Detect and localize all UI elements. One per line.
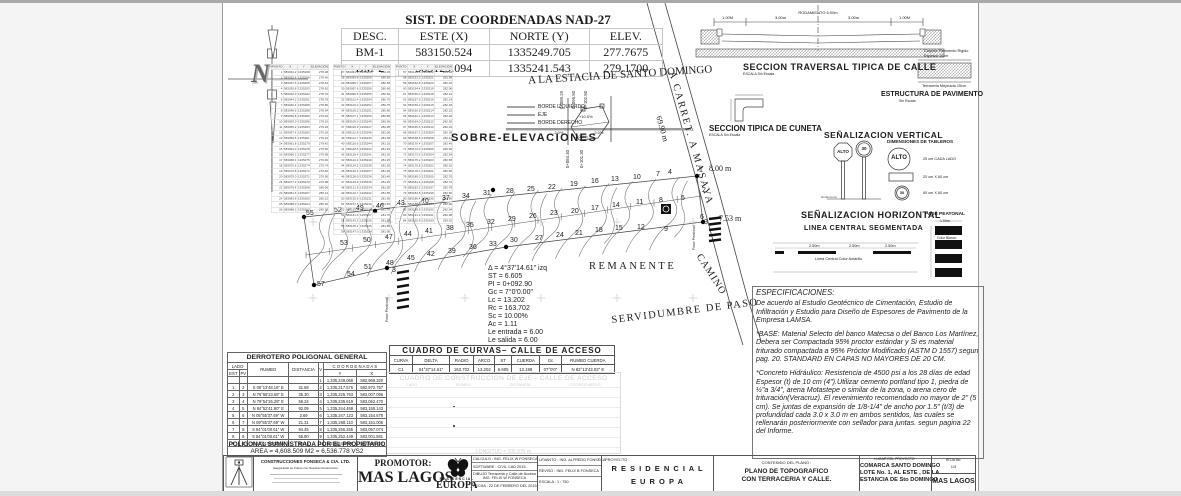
pav-layer1b: Espesor 10cm (924, 54, 948, 58)
proyecto-cell: PROYECTO : R E S I D E N C I A L E U R O… (601, 455, 713, 491)
lugar-label: LUGAR DEL PROYECTO : (860, 457, 931, 461)
svg-text:25: 25 (527, 186, 535, 193)
svg-text:19: 19 (570, 181, 578, 188)
pct-minus2b: -2.0% (593, 130, 603, 135)
svg-text:39: 39 (448, 248, 456, 255)
pav-layer2: Terraceria Mejorada 15cm (922, 84, 966, 88)
fecha-row: FECHA : 22 DE FEBRERO DEL 2015 (472, 482, 537, 490)
svg-text:17: 17 (591, 205, 599, 212)
specs-paragraph-2: *BASE: Material Selecto del banco Matecs… (756, 330, 980, 363)
svg-text:21: 21 (575, 230, 583, 237)
contenido-cell: CONTENIDO DEL PLANO : PLANO DE TOPOGRAFI… (713, 455, 859, 491)
speed-sign-big: 30 (896, 190, 908, 195)
company-cell: CONSTRUCCIONES FONSECA & CIA. LTD. Asegu… (253, 455, 357, 491)
pav-layer1a: Carpeta Pavimento Rigido (924, 49, 968, 53)
svg-text:8: 8 (659, 197, 663, 204)
station-top-3: 0+102.50 (583, 91, 588, 109)
lugar-cell: LUGAR DEL PROYECTO : COMARCA SANTO DOMIN… (859, 455, 931, 491)
plan-sheet: 5552494643403734312825221916131074153504… (222, 3, 979, 491)
svg-text:24: 24 (556, 232, 564, 239)
linea-central-subtitle: LINEA CENTRAL SEGMENTADA (804, 225, 923, 232)
center-line-note: Linea Central Color Amarillo (815, 257, 862, 261)
specs-paragraph-1: De acuerdo al Estudio Geotécnico de Cime… (756, 299, 980, 324)
legend-borde-der: BORDE DERECHO (538, 120, 582, 126)
pase-peatonal-left-label: Pase Peatonal (385, 297, 389, 322)
svg-text:13: 13 (611, 176, 619, 183)
station-bot-2: 0+101.30 (579, 150, 584, 168)
svg-text:53: 53 (340, 240, 348, 247)
svg-text:5: 5 (681, 195, 685, 202)
europa-small: EUROPA (436, 480, 476, 491)
pct-plus10: +10.0% (579, 114, 593, 119)
reviso-row: REVISO : ING. FELIX B FONSECA (538, 466, 601, 477)
svg-text:11: 11 (636, 199, 643, 206)
width1-label: 8.00 m (709, 164, 731, 173)
svg-text:3: 3 (704, 219, 708, 226)
curve-data-note: Δ = 4°37'14.61" izqST = 6.605PI = 0+092.… (488, 265, 618, 345)
svg-text:22: 22 (548, 184, 556, 191)
specs-paragraph-3: *Concreto Hidráulico: Resistencia de 450… (756, 369, 980, 435)
company-name: CONSTRUCCIONES FONSECA & CIA. LTD. (254, 459, 357, 464)
svg-text:41: 41 (425, 228, 433, 235)
station-top-1: 0+089.29 (559, 91, 564, 109)
speed-sign-small: 30 (858, 146, 870, 151)
svg-text:29: 29 (508, 216, 516, 223)
svg-text:33: 33 (489, 241, 497, 248)
svg-text:45: 45 (407, 255, 415, 262)
hoja-label: HOJA No. (932, 458, 975, 462)
contenido-label: CONTENIDO DEL PLANO : (714, 460, 859, 465)
svg-text:7: 7 (656, 171, 660, 178)
svg-text:4: 4 (668, 169, 672, 176)
cuneta-title: SECCION TIPICA DE CUNETA (709, 124, 822, 133)
pct-minus10: -10.0% (575, 134, 588, 139)
svg-text:9: 9 (664, 226, 668, 233)
svg-text:3: 3 (392, 267, 396, 274)
calle-section-title: SECCION TRAVERSAL TIPICA DE CALLE (743, 62, 936, 72)
svg-text:51: 51 (364, 264, 372, 271)
svg-text:27: 27 (535, 235, 543, 242)
tablero-dim2: 20 cm X 60 cm (923, 175, 948, 179)
levanto-row: LEVANTO : ING. ALFREDO FONSECA (538, 455, 601, 466)
rodamiento-ref: Rodamiento (821, 195, 837, 199)
width2-label: 7.53 m (719, 214, 741, 223)
faint-title: CUADRO DE CONSTRUCCION DE EJE - CALLE DE… (387, 375, 620, 382)
svg-text:28: 28 (506, 188, 514, 195)
proyecto-line2: E U R O P A (602, 477, 713, 486)
svg-text:48: 48 (386, 260, 394, 267)
cuneta-scale: ESCALA Sin Escala (709, 133, 740, 137)
calle-section-scale: ESCALA Sin Escala (743, 72, 774, 76)
svg-text:15: 15 (615, 225, 623, 232)
levanto-cell: LEVANTO : ING. ALFREDO FONSECA REVISO : … (537, 455, 601, 491)
svg-text:16: 16 (591, 178, 599, 185)
pase-peatonal-right-label: Pase Peatonal (692, 225, 696, 250)
proyecto-label: PROYECTO : (602, 455, 713, 462)
dash-dim-3: 2.50m (885, 244, 896, 248)
datos-cell: CALCULO : ING. FELIX W FONSECA SOFTWARE … (471, 455, 537, 491)
contenido-line1: PLANO DE TOPOGRAFICO (714, 468, 859, 475)
hoja-cell: HOJA No. 1/3 MAS LAGOS (931, 455, 976, 491)
tablero-dim3: 60 cm X 60 cm (923, 191, 948, 195)
proyecto-line1: R E S I D E N C I A L (602, 464, 713, 473)
promotor-cell: PROMOTOR: MAS LAGOS RESIDENCIAL EUROPA (357, 455, 471, 491)
calculo-row: CALCULO : ING. FELIX W FONSECA (472, 455, 537, 463)
svg-text:18: 18 (595, 227, 603, 234)
contenido-line2: CON TERRACERIA Y CALLE. (714, 476, 859, 483)
color-blanco-note: Color Blanco (937, 236, 956, 240)
tableros-subtitle: DIMENSIONES DE TABLEROS (887, 139, 953, 144)
specs-title: ESPECIFICACIONES: (756, 289, 980, 297)
svg-text:44: 44 (404, 231, 412, 238)
alto-sign-big: ALTO (887, 155, 911, 161)
north-letter: N (251, 59, 270, 89)
legend-eje: EJE (538, 112, 547, 118)
surveyor-logo-icon (224, 455, 254, 489)
dim-4: 1.00M (899, 15, 910, 20)
svg-text:38: 38 (446, 225, 454, 232)
dim-2: 3.00m (775, 15, 786, 20)
svg-text:42: 42 (427, 251, 435, 258)
viewer-bottom-strip (0, 491, 1181, 496)
specifications-box: ESPECIFICACIONES: De acuerdo al Estudio … (752, 286, 984, 459)
promotor-label: PROMOTOR: (358, 458, 448, 468)
tablero-dim1: 25 cm CADA LADO (923, 157, 956, 161)
coord-table-title: SIST. DE COORDENADAS NAD-27 (353, 12, 663, 28)
svg-text:20: 20 (571, 208, 579, 215)
dash-dim-1: 2.50m (809, 244, 820, 248)
pavimento-title: ESTRUCTURA DE PAVIMENTO (881, 91, 983, 98)
drawing-viewer: 5552494643403734312825221916131074153504… (0, 0, 1181, 496)
dibujo-row-2: ING. FELIX W FONSECA (473, 476, 536, 480)
pase-dim: 1.00m (940, 219, 950, 223)
lugar-line2: LOTE No. 1, AL ESTE , DE LA (860, 470, 931, 476)
faint-construction-table: CUADRO DE CONSTRUCCION DE EJE - CALLE DE… (386, 372, 621, 454)
senal-horizontal-title: SEÑALIZACION HORIZONTAL (801, 210, 941, 220)
company-logo-cell (223, 455, 253, 491)
rodamiento-dim: RODAMIENTO 6.00m (778, 10, 858, 15)
svg-text:35: 35 (466, 222, 474, 229)
pase-peatonal-title: PASE PEATONAL (925, 212, 965, 217)
company-tagline: Asegurando su Futuro con Nuestra Constru… (254, 466, 357, 470)
maslagos-small: MAS LAGOS (932, 478, 975, 485)
pct-minus2a: -2.0% (553, 130, 563, 135)
station-table-3: PUNTOXYELEVACION57583149.61335222281.945… (395, 64, 453, 224)
station-table-2: PUNTOXYELEVACION27583091.91335260280.452… (333, 64, 391, 235)
butterfly-logo-icon (446, 458, 470, 478)
svg-text:50: 50 (363, 237, 371, 244)
svg-text:30: 30 (510, 237, 518, 244)
svg-text:57: 57 (317, 281, 325, 288)
alto-sign-small: ALTO (834, 149, 852, 154)
svg-text:12: 12 (637, 224, 645, 231)
svg-text:54: 54 (347, 271, 355, 278)
derrotero-note: POLIGONAL SUMINISTRADA POR EL PROPIETARI… (225, 441, 389, 448)
svg-text:23: 23 (550, 210, 558, 217)
lugar-line3: ESTANCIA DE Sto DOMINGO (860, 477, 931, 483)
svg-text:31: 31 (483, 190, 491, 197)
pavimento-scale: Sin Escala (899, 99, 916, 103)
svg-text:36: 36 (469, 244, 477, 251)
svg-text:47: 47 (385, 234, 393, 241)
software-row: SOFTWARE : CIVIL CAD 2015. (472, 463, 537, 471)
svg-text:34: 34 (462, 193, 470, 200)
dim-1: 1.00M (722, 15, 733, 20)
svg-text:14: 14 (612, 202, 620, 209)
curves-table: CUADRO DE CURVAS– CALLE DE ACCESO CURVAD… (389, 345, 615, 374)
escala-row: ESCALA : 1 : 750 (538, 477, 601, 487)
dim-3: 3.00m (848, 15, 859, 20)
svg-text:26: 26 (529, 213, 537, 220)
station-bot-1: 0+084.40 (565, 150, 570, 168)
station-table-1: PUNTOXYELEVACION1583033.21335298278.3825… (271, 64, 329, 213)
dash-dim-2: 2.50m (849, 244, 860, 248)
hoja-number: 1/3 (932, 464, 975, 474)
lugar-line1: COMARCA SANTO DOMINGO (860, 463, 931, 469)
svg-text:32: 32 (487, 219, 495, 226)
svg-text:10: 10 (633, 174, 641, 181)
station-top-2: 0+096.50 (571, 91, 576, 109)
